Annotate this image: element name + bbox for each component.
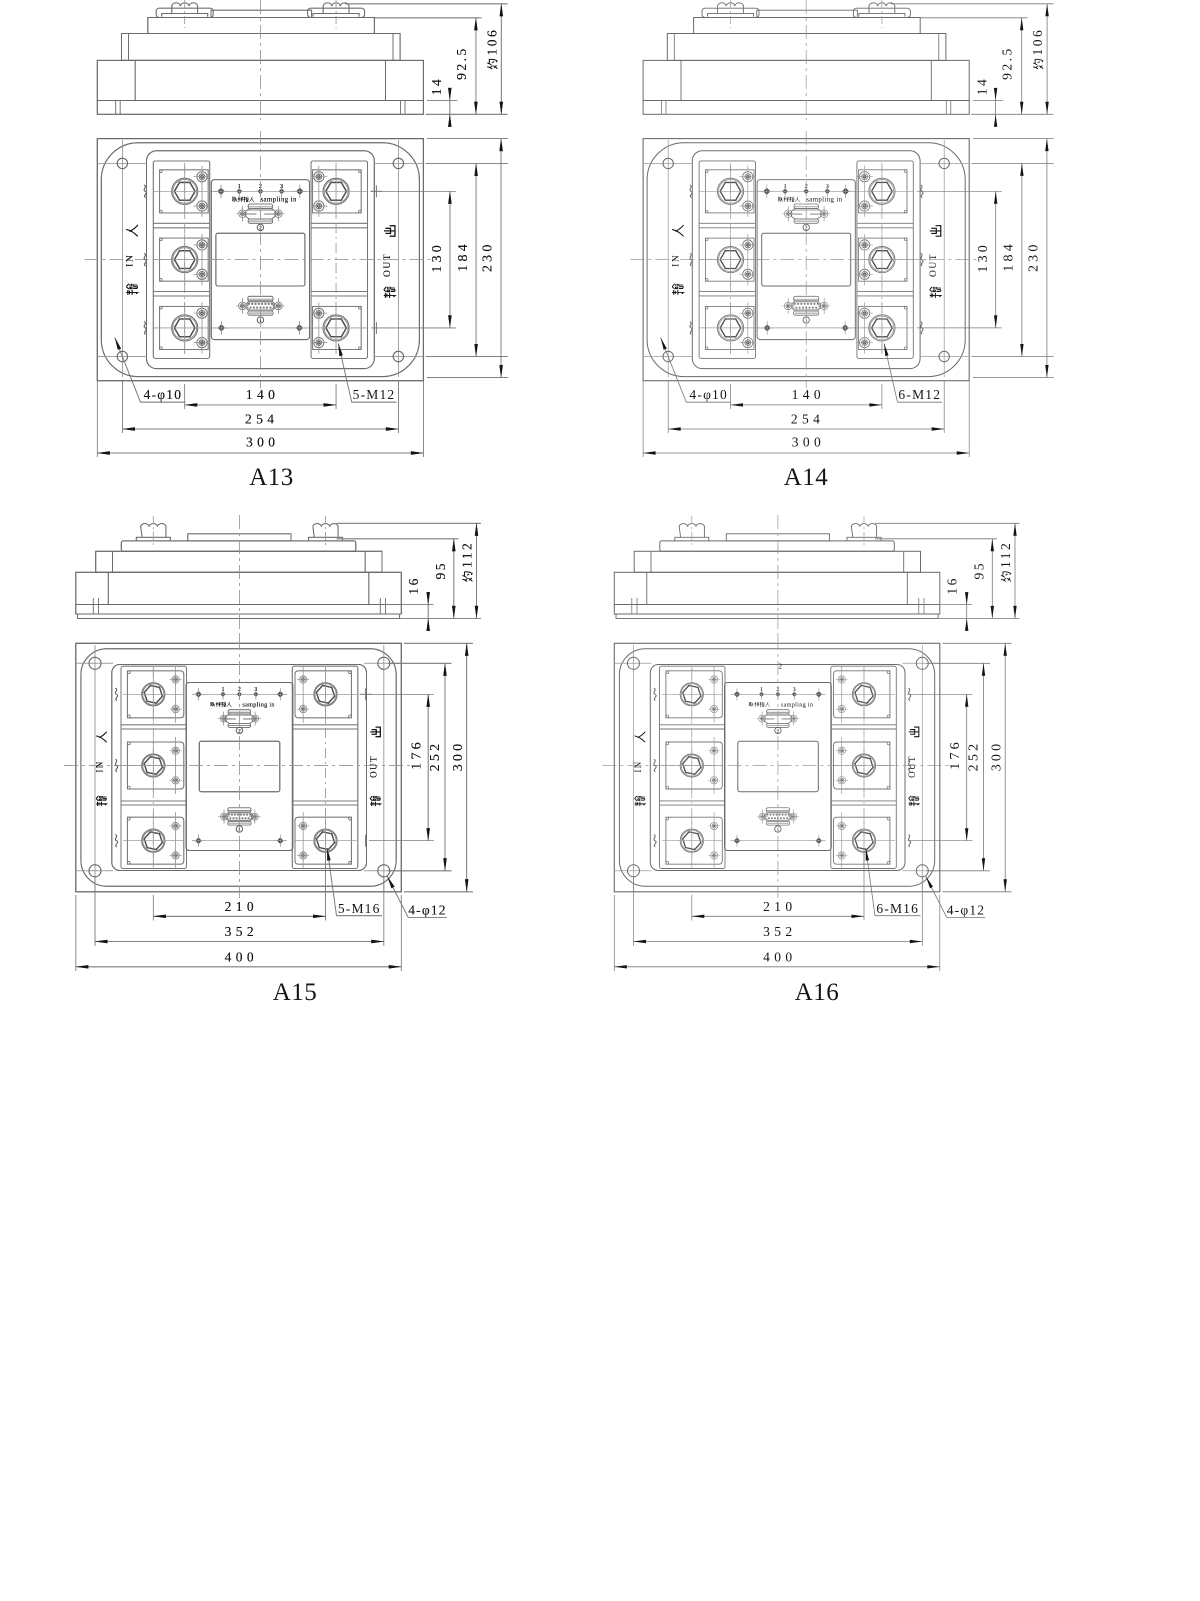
svg-text:6-M16: 6-M16	[876, 901, 919, 916]
svg-text:6-M12: 6-M12	[898, 387, 941, 402]
svg-text:2: 2	[778, 662, 782, 671]
svg-text:5-M16: 5-M16	[338, 901, 381, 916]
svg-text:A16: A16	[795, 979, 840, 1006]
svg-text:A13: A13	[249, 464, 294, 491]
svg-text:A14: A14	[784, 464, 829, 491]
svg-text:5-M12: 5-M12	[353, 387, 396, 402]
svg-text:A15: A15	[273, 979, 318, 1006]
